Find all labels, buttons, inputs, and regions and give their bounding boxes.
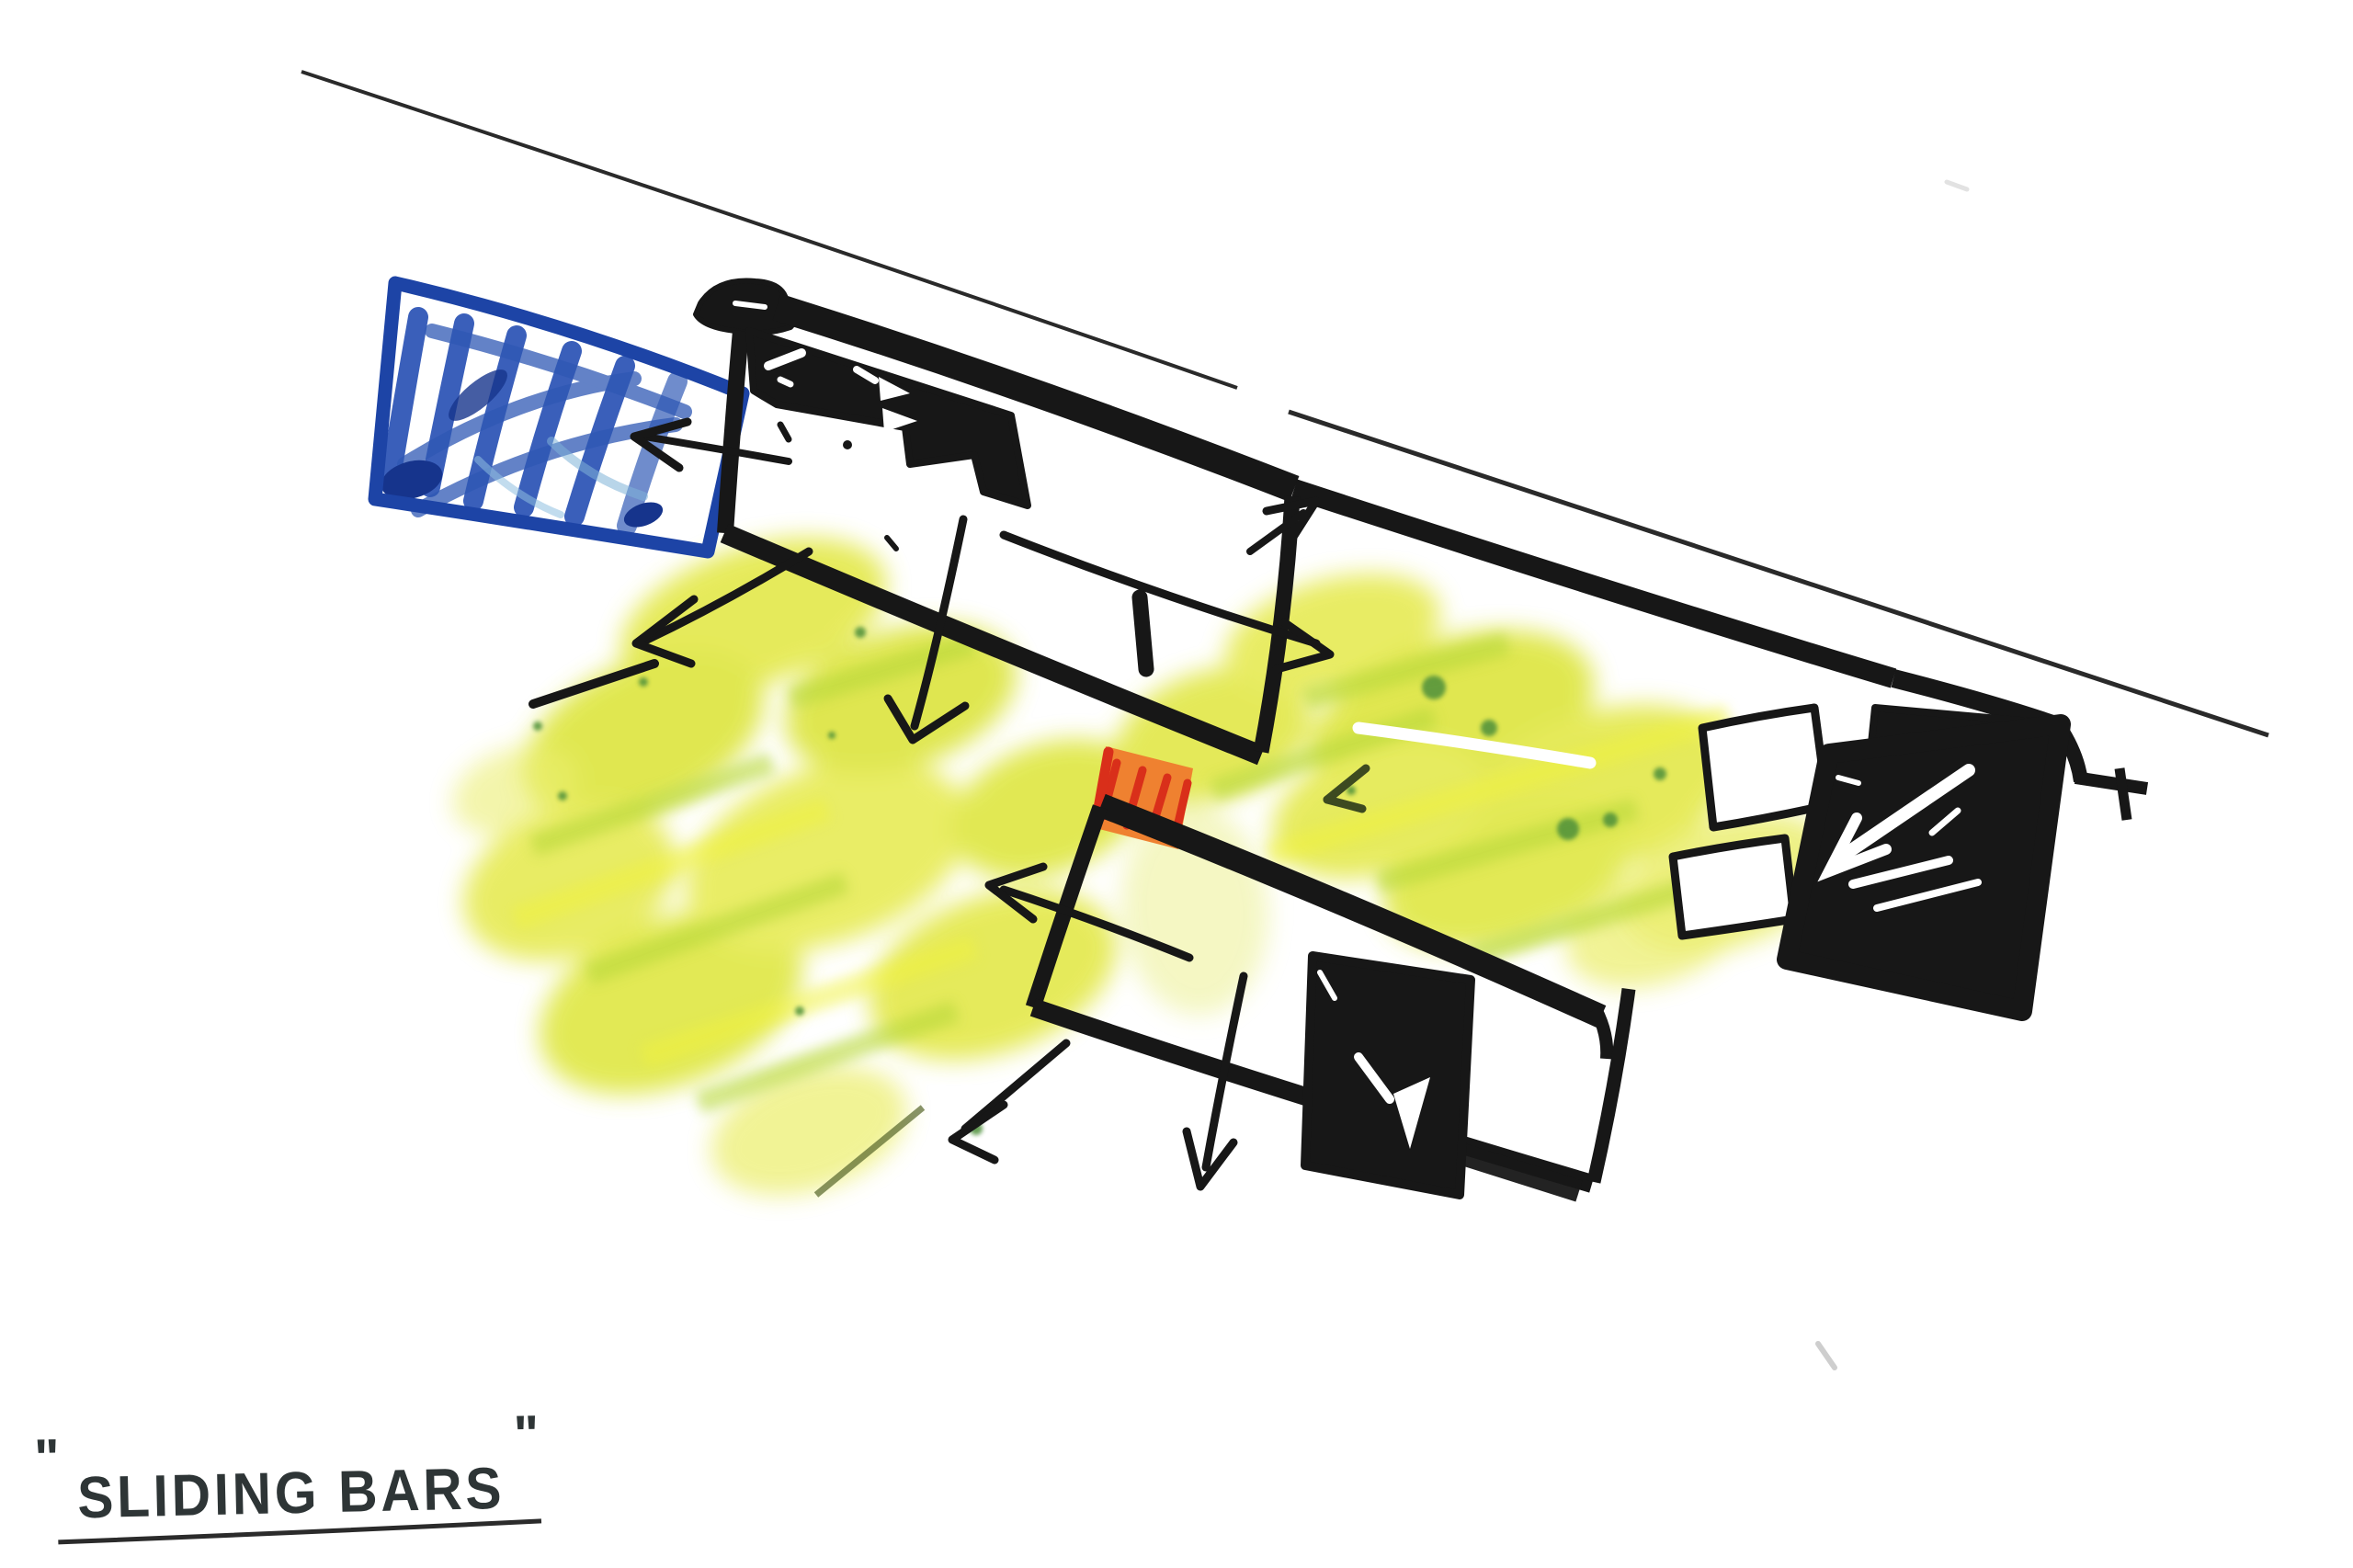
pen-dot	[843, 440, 852, 449]
sketch-page: " SLIDING BARS "	[0, 0, 2353, 1568]
sliding-bars-sketch: " SLIDING BARS "	[0, 0, 2353, 1568]
caption-close-quote: "	[513, 1404, 540, 1465]
small-room-2	[1673, 838, 1794, 936]
caption-title: SLIDING BARS	[76, 1455, 506, 1531]
blob-slit	[735, 303, 765, 307]
caption-open-quote: "	[34, 1428, 61, 1489]
upper-bar-door-dash	[1140, 597, 1146, 669]
